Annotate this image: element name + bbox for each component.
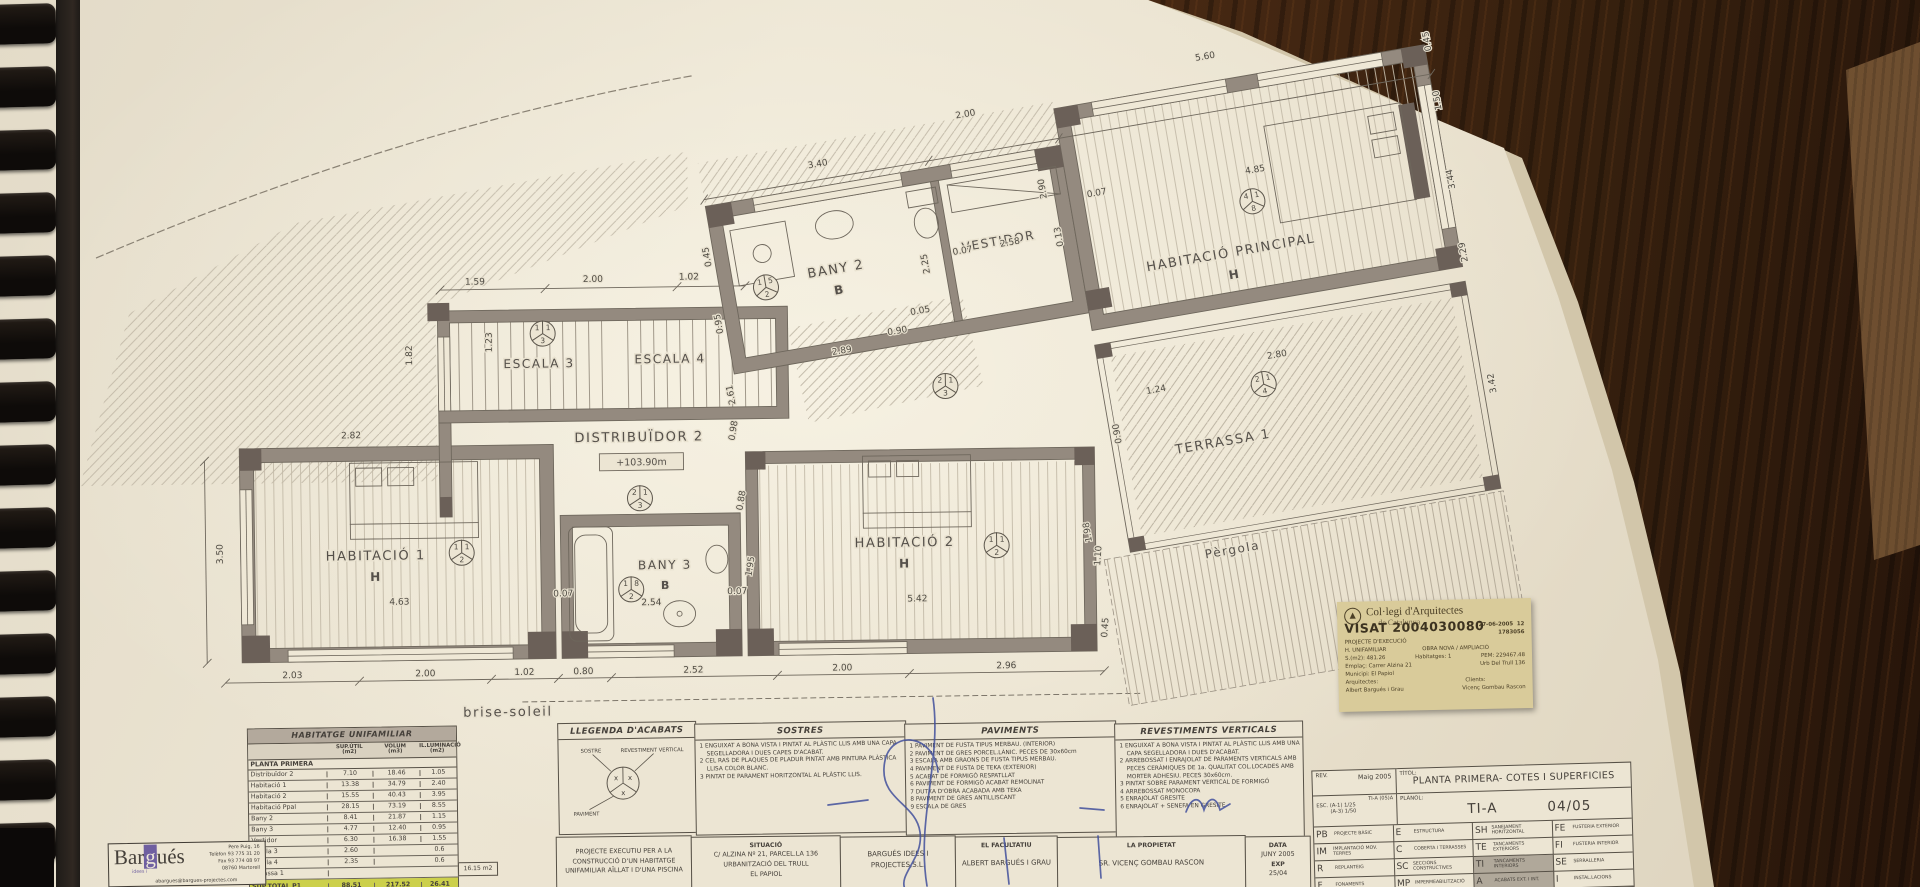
situacio-cell: SITUACIÓ C/ ALZINA Nº 21, PARCEL.LA 136U… (691, 835, 842, 887)
binding-ring (0, 381, 57, 423)
title-line: EL PAPIOL (714, 869, 818, 880)
code-label: COBERTA I TERRASSES (1414, 846, 1466, 853)
binding-ring (0, 444, 57, 486)
drawing-code-cell: MPIMPERMEABILITZACIÓ (1395, 874, 1475, 887)
code-label: REPLANTEIG (1335, 865, 1364, 871)
terrassa-area-note: 16.15 m2 (458, 862, 498, 877)
paviments-box: PAVIMENTS 1 PAVIMENT DE FUSTA TIPUS MERB… (904, 720, 1118, 835)
binding-ring (0, 192, 57, 234)
company-cell: BARGUÉS IDEES I PROJECTES,S.L. (840, 835, 957, 887)
sheet-code: TI-A (1467, 800, 1497, 817)
code-abbr: SC (1396, 862, 1411, 872)
code-abbr: SH (1475, 826, 1490, 836)
binding-ring (0, 66, 57, 108)
code-label: SANEJAMENT HORITZONTAL (1491, 824, 1549, 836)
code-abbr: SE (1555, 857, 1571, 867)
code-abbr: C (1396, 845, 1412, 855)
table-cell: 21.87 (374, 814, 421, 821)
propietat-name: SR. VICENÇ GOMBAU RASCON (1099, 858, 1204, 870)
binding-ring (0, 3, 57, 45)
binding-ring (0, 696, 57, 738)
code-abbr: IM (1316, 847, 1331, 857)
binding-ring (0, 318, 57, 360)
table-cell: Habitació 1 (249, 782, 328, 789)
table-cell: 2.40 (420, 781, 456, 788)
code-abbr: A (1476, 876, 1492, 886)
svg-text:REVESTIMENT VERTICAL: REVESTIMENT VERTICAL (621, 747, 684, 754)
table-cell (329, 873, 376, 874)
code-label: IMPLANTACIÓ MOV. TERRES (1333, 845, 1391, 857)
table-cell: 217.52 (375, 882, 422, 887)
data-cell: DATA JUNY 2005 EXP 25/04 (1245, 836, 1312, 887)
table-cell (375, 850, 422, 851)
table-cell: Bany 3 (249, 826, 328, 833)
code-label: PROJECTE BÀSIC (1334, 831, 1372, 837)
table-cell: 13.38 (327, 782, 374, 789)
facultatiu-cell: EL FACULTATIU ALBERT BARGUÉS I GRAU (955, 835, 1059, 887)
table-cell: 6.30 (328, 837, 375, 844)
table-cell: Bany 2 (249, 815, 328, 822)
firm-address: Pere Puig, 16Telèfon 93 775 31 20Fax 93 … (191, 845, 261, 882)
legend-item: 6 ENRAJOLAT + SENEFA EN GRESITE (1120, 802, 1301, 812)
situacio-title: SITUACIÓ (749, 841, 782, 851)
legend-symbols-box: LLEGENDA D'ACABATS SOSTRE REVESTIMENT VE… (557, 721, 698, 835)
code-abbr: MP (1397, 879, 1413, 887)
code-abbr: R (1317, 864, 1333, 874)
table-cell: 12.40 (374, 825, 421, 832)
sostres-box: SOSTRES 1 ENGUIXAT A BONA VISTA I PINTAT… (694, 720, 908, 835)
table-cell: 8.55 (421, 803, 457, 810)
coac-visat-stamp: ▲ Col·legi d'Arquitectes de Catalunya VI… (1337, 598, 1533, 712)
project-title-cell: PROJEC­TE EXECUTIU PER A LACONSTRUCCIÓ D… (556, 835, 693, 887)
table-cell: 1.15 (421, 814, 457, 821)
binding-ring (0, 633, 57, 675)
drawing-code-cell: FFONAMENTS (1315, 876, 1395, 887)
binding-spine (56, 0, 80, 887)
code-abbr: I (1556, 874, 1572, 884)
code-abbr: FI (1555, 840, 1571, 850)
code-label: TANCAMENTS EXTERIORS (1493, 841, 1550, 853)
code-label: ACABATS EXT. I INT. (1494, 878, 1539, 885)
binding-ring (0, 570, 57, 612)
table-cell: 0.6 (421, 847, 457, 854)
code-abbr: TE (1475, 843, 1491, 853)
stamp-org: Col·legi d'Arquitectes de Catalunya (1366, 605, 1463, 627)
table-cell: 88.51 (329, 882, 376, 887)
firm-email: abargues@bargues-projectes.com (155, 878, 237, 884)
code-label: FONAMENTS (1335, 882, 1364, 887)
table-cell: 4.77 (328, 826, 375, 833)
table-cell: 40.43 (374, 792, 421, 799)
table-cell: 8.41 (328, 815, 375, 822)
svg-text:x: x (621, 789, 625, 797)
propietat-cell: LA PROPIETAT SR. VICENÇ GOMBAU RASCON (1057, 835, 1247, 887)
binding-ring (0, 129, 57, 171)
code-label: IMPERMEABILITZACIÓ (1415, 880, 1465, 887)
table-cell: 15.55 (327, 793, 374, 800)
code-label: SERRALLERIA (1573, 859, 1604, 865)
table-cell (375, 872, 422, 873)
photo-of-floorplan: HABITACIÓ 1HBANY 3BHABITACIÓ 2HESCALA 3E… (0, 0, 1920, 887)
title-line: UNIFAMILIAR AÏLLAT I D'UNA PISCINA (565, 866, 683, 877)
svg-text:PAVIMENT: PAVIMENT (574, 811, 601, 817)
title-line: URBANITZACIÓ DEL TRULL (714, 859, 818, 870)
table-cell: 34.79 (374, 781, 421, 788)
code-label: FUSTERIA EXTERIOR (1572, 824, 1619, 831)
revestiments-box: REVESTIMENTS VERTICALS 1 ENGUIXAT A BONA… (1114, 721, 1305, 844)
facultatiu-name: ALBERT BARGUÉS I GRAU (962, 858, 1051, 869)
code-abbr: F (1317, 881, 1333, 887)
code-abbr: FE (1554, 823, 1570, 833)
table-cell: 18.46 (374, 770, 421, 777)
svg-text:x: x (614, 774, 618, 782)
table-cell: Habitació 2 (249, 793, 328, 800)
code-label: TANCAMENTS INTERIORS (1494, 858, 1551, 870)
code-label: INSTAL.LACIONS (1574, 876, 1612, 882)
table-cell: 7.10 (327, 771, 374, 778)
table-cell: Habitació Ppal (249, 804, 328, 811)
table-cell: 1.55 (421, 836, 457, 843)
table-cell: 1.05 (420, 770, 456, 777)
table-cell: 16.38 (375, 836, 422, 843)
table-cell: 3.95 (421, 792, 457, 799)
code-abbr: PB (1316, 830, 1332, 840)
firm-logo-box: Bargués idees i Pere Puig, 16Telèfon 93 … (108, 841, 267, 887)
code-label: SECCIONS CONSTRUCTIVES (1413, 860, 1471, 872)
drawing-code-cell: AACABATS EXT. I INT. (1474, 872, 1554, 887)
address-line: 08760 Martorell (191, 866, 260, 874)
code-label: FUSTERIA INTERIOR (1573, 841, 1619, 848)
code-abbr: TI (1476, 859, 1492, 869)
title-block-table: REV.Maig 2005 TÍTOL: PLANTA PRIMERA- COT… (1311, 762, 1634, 887)
finish-symbol-key: SOSTRE REVESTIMENT VERTICAL PAVIMENT x x… (558, 738, 692, 828)
table-cell: 2.35 (328, 859, 375, 866)
sheet-number: 04/05 (1547, 798, 1591, 815)
legend-item: 2 ARREBOSSAT I ENRAJOLAT DE PARAMENTS VE… (1120, 756, 1301, 782)
area-summary-table: HABITATGE UNIFAMILIAR SUP.ÚTIL(m2) VOLUM… (247, 726, 459, 887)
photo-corner-shadow (0, 828, 54, 887)
binding-ring (0, 255, 57, 297)
binding-ring (0, 759, 57, 801)
drawing-code-cell: IINSTAL.LACIONS (1554, 870, 1634, 887)
svg-text:x: x (628, 774, 632, 782)
table-cell: 0.6 (422, 858, 458, 865)
table-cell (422, 872, 458, 873)
svg-text:SOSTRE: SOSTRE (581, 748, 602, 754)
table-cell (375, 861, 422, 862)
table-cell: 26.41 (422, 881, 458, 887)
table-cell: 0.95 (421, 825, 457, 832)
sheet-title: PLANTA PRIMERA- COTES I SUPERFICIES (1396, 770, 1630, 788)
code-abbr: E (1395, 828, 1411, 838)
table-cell: 28.15 (328, 804, 375, 811)
company-name: BARGUÉS IDEES I PROJECTES,S.L. (841, 848, 955, 870)
code-label: ESTRUCTURA (1414, 829, 1445, 835)
table-cell: 73.19 (374, 803, 421, 810)
table-cell: 2.60 (328, 848, 375, 855)
firm-name: Bargués (114, 846, 185, 868)
table-cell: Distribuïdor 2 (248, 771, 327, 778)
binding-ring (0, 507, 57, 549)
